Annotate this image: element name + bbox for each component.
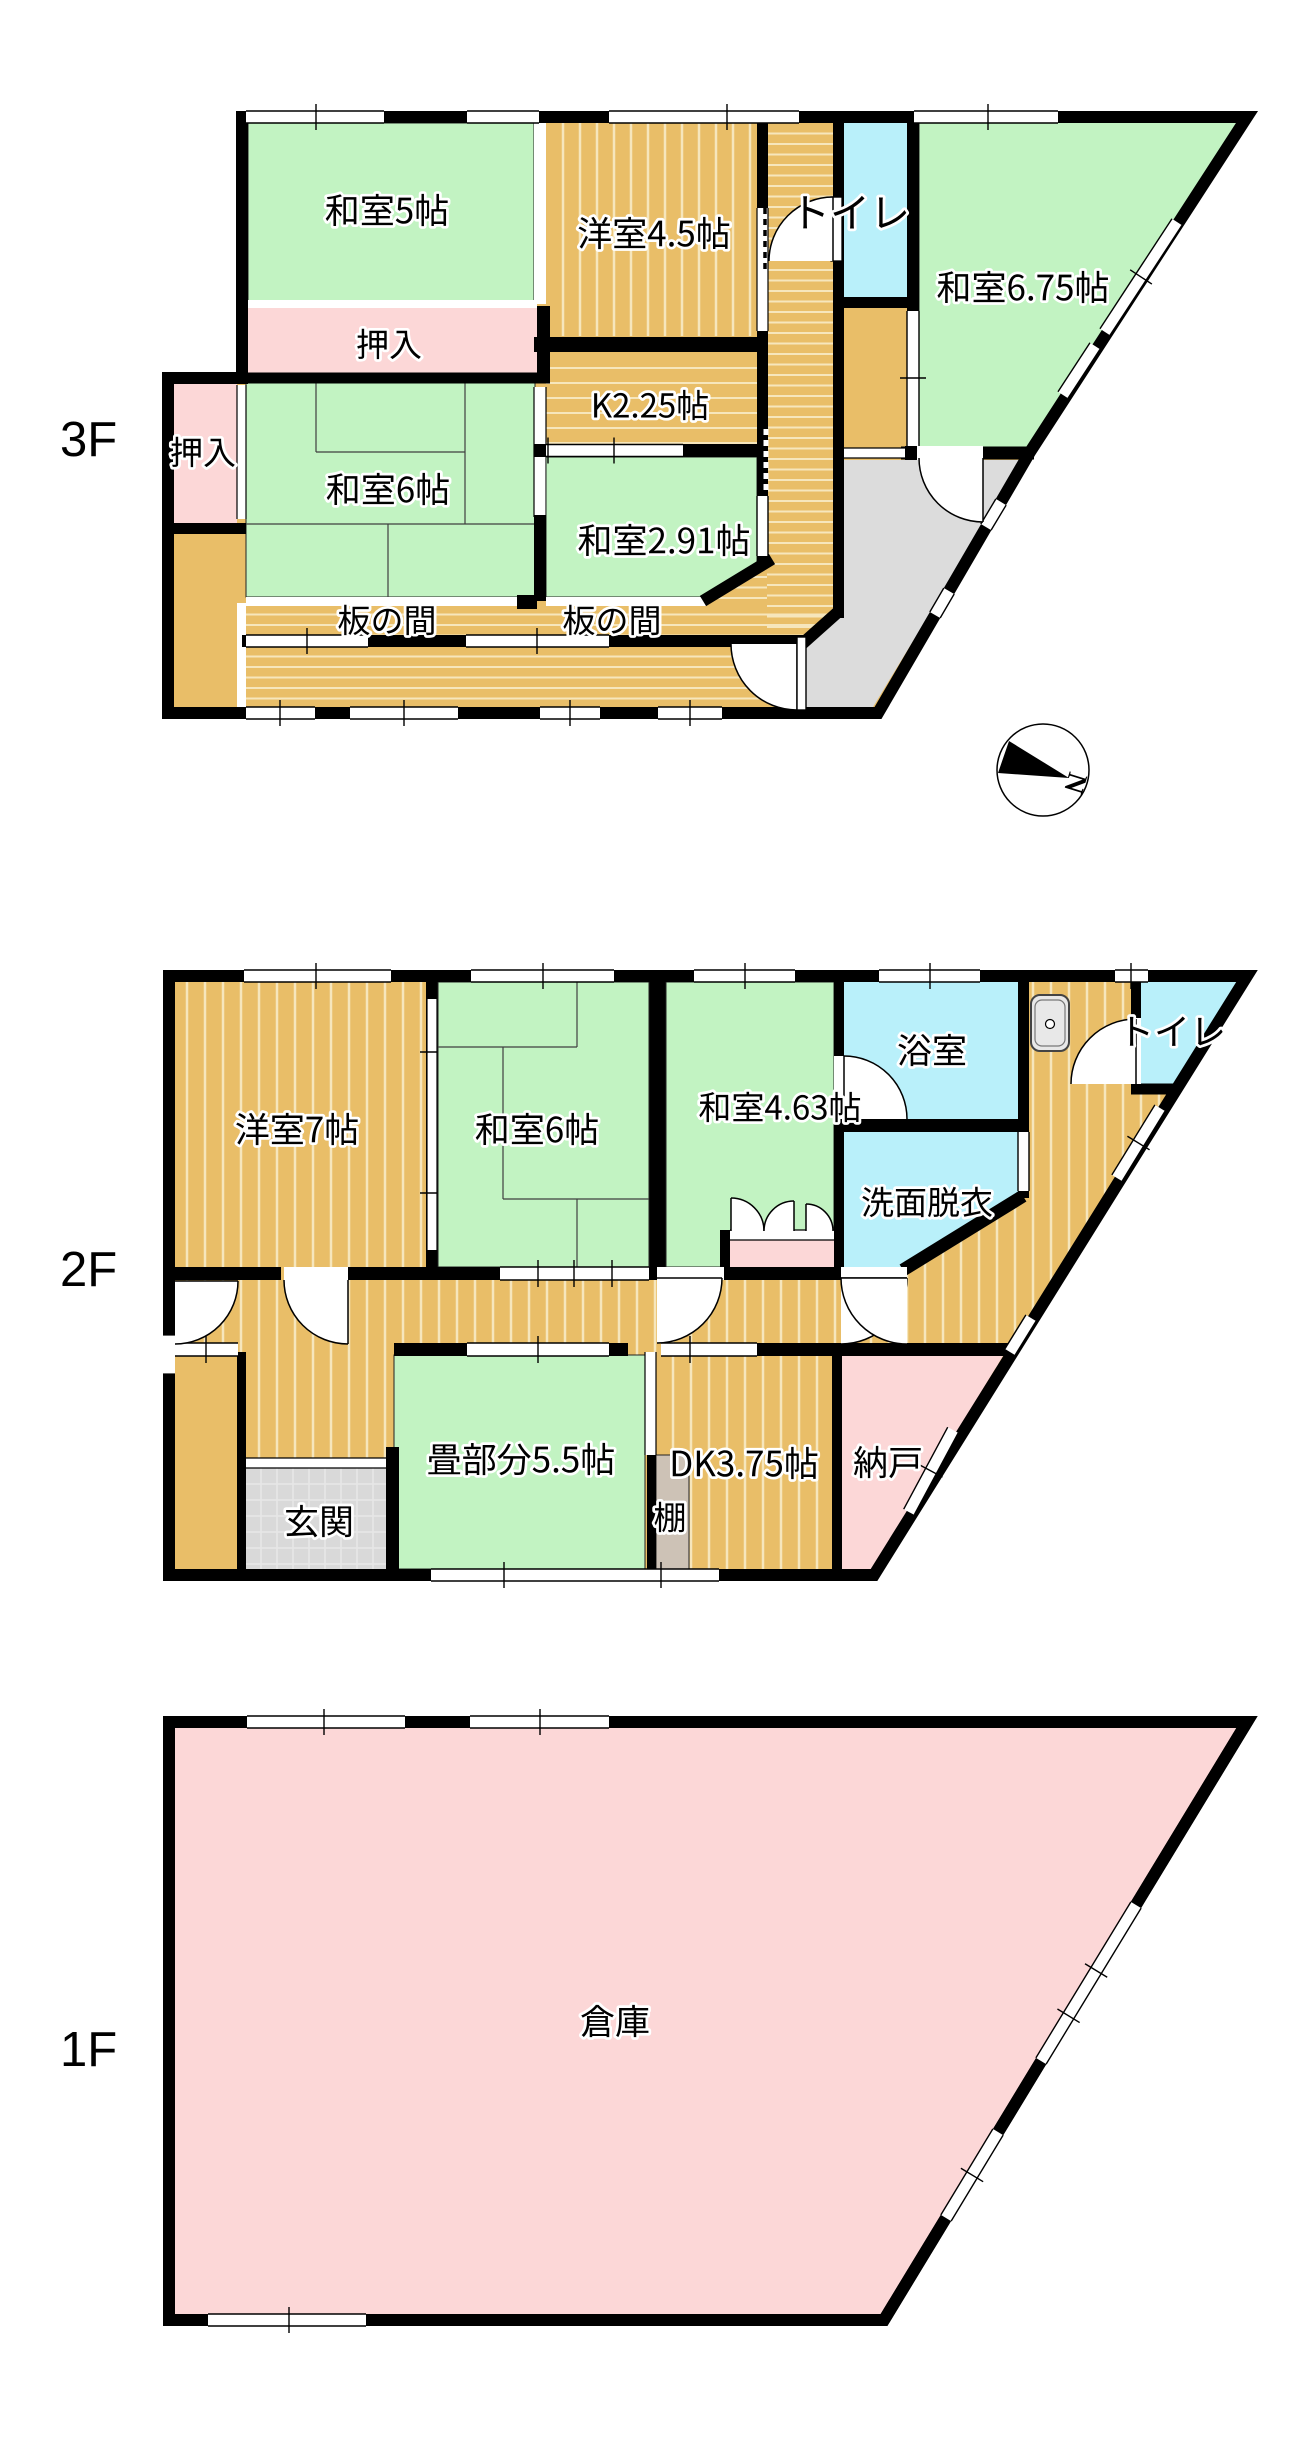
svg-text:3F: 3F	[60, 413, 117, 467]
svg-text:1F: 1F	[60, 2023, 117, 2077]
svg-text:2F: 2F	[60, 1243, 117, 1297]
